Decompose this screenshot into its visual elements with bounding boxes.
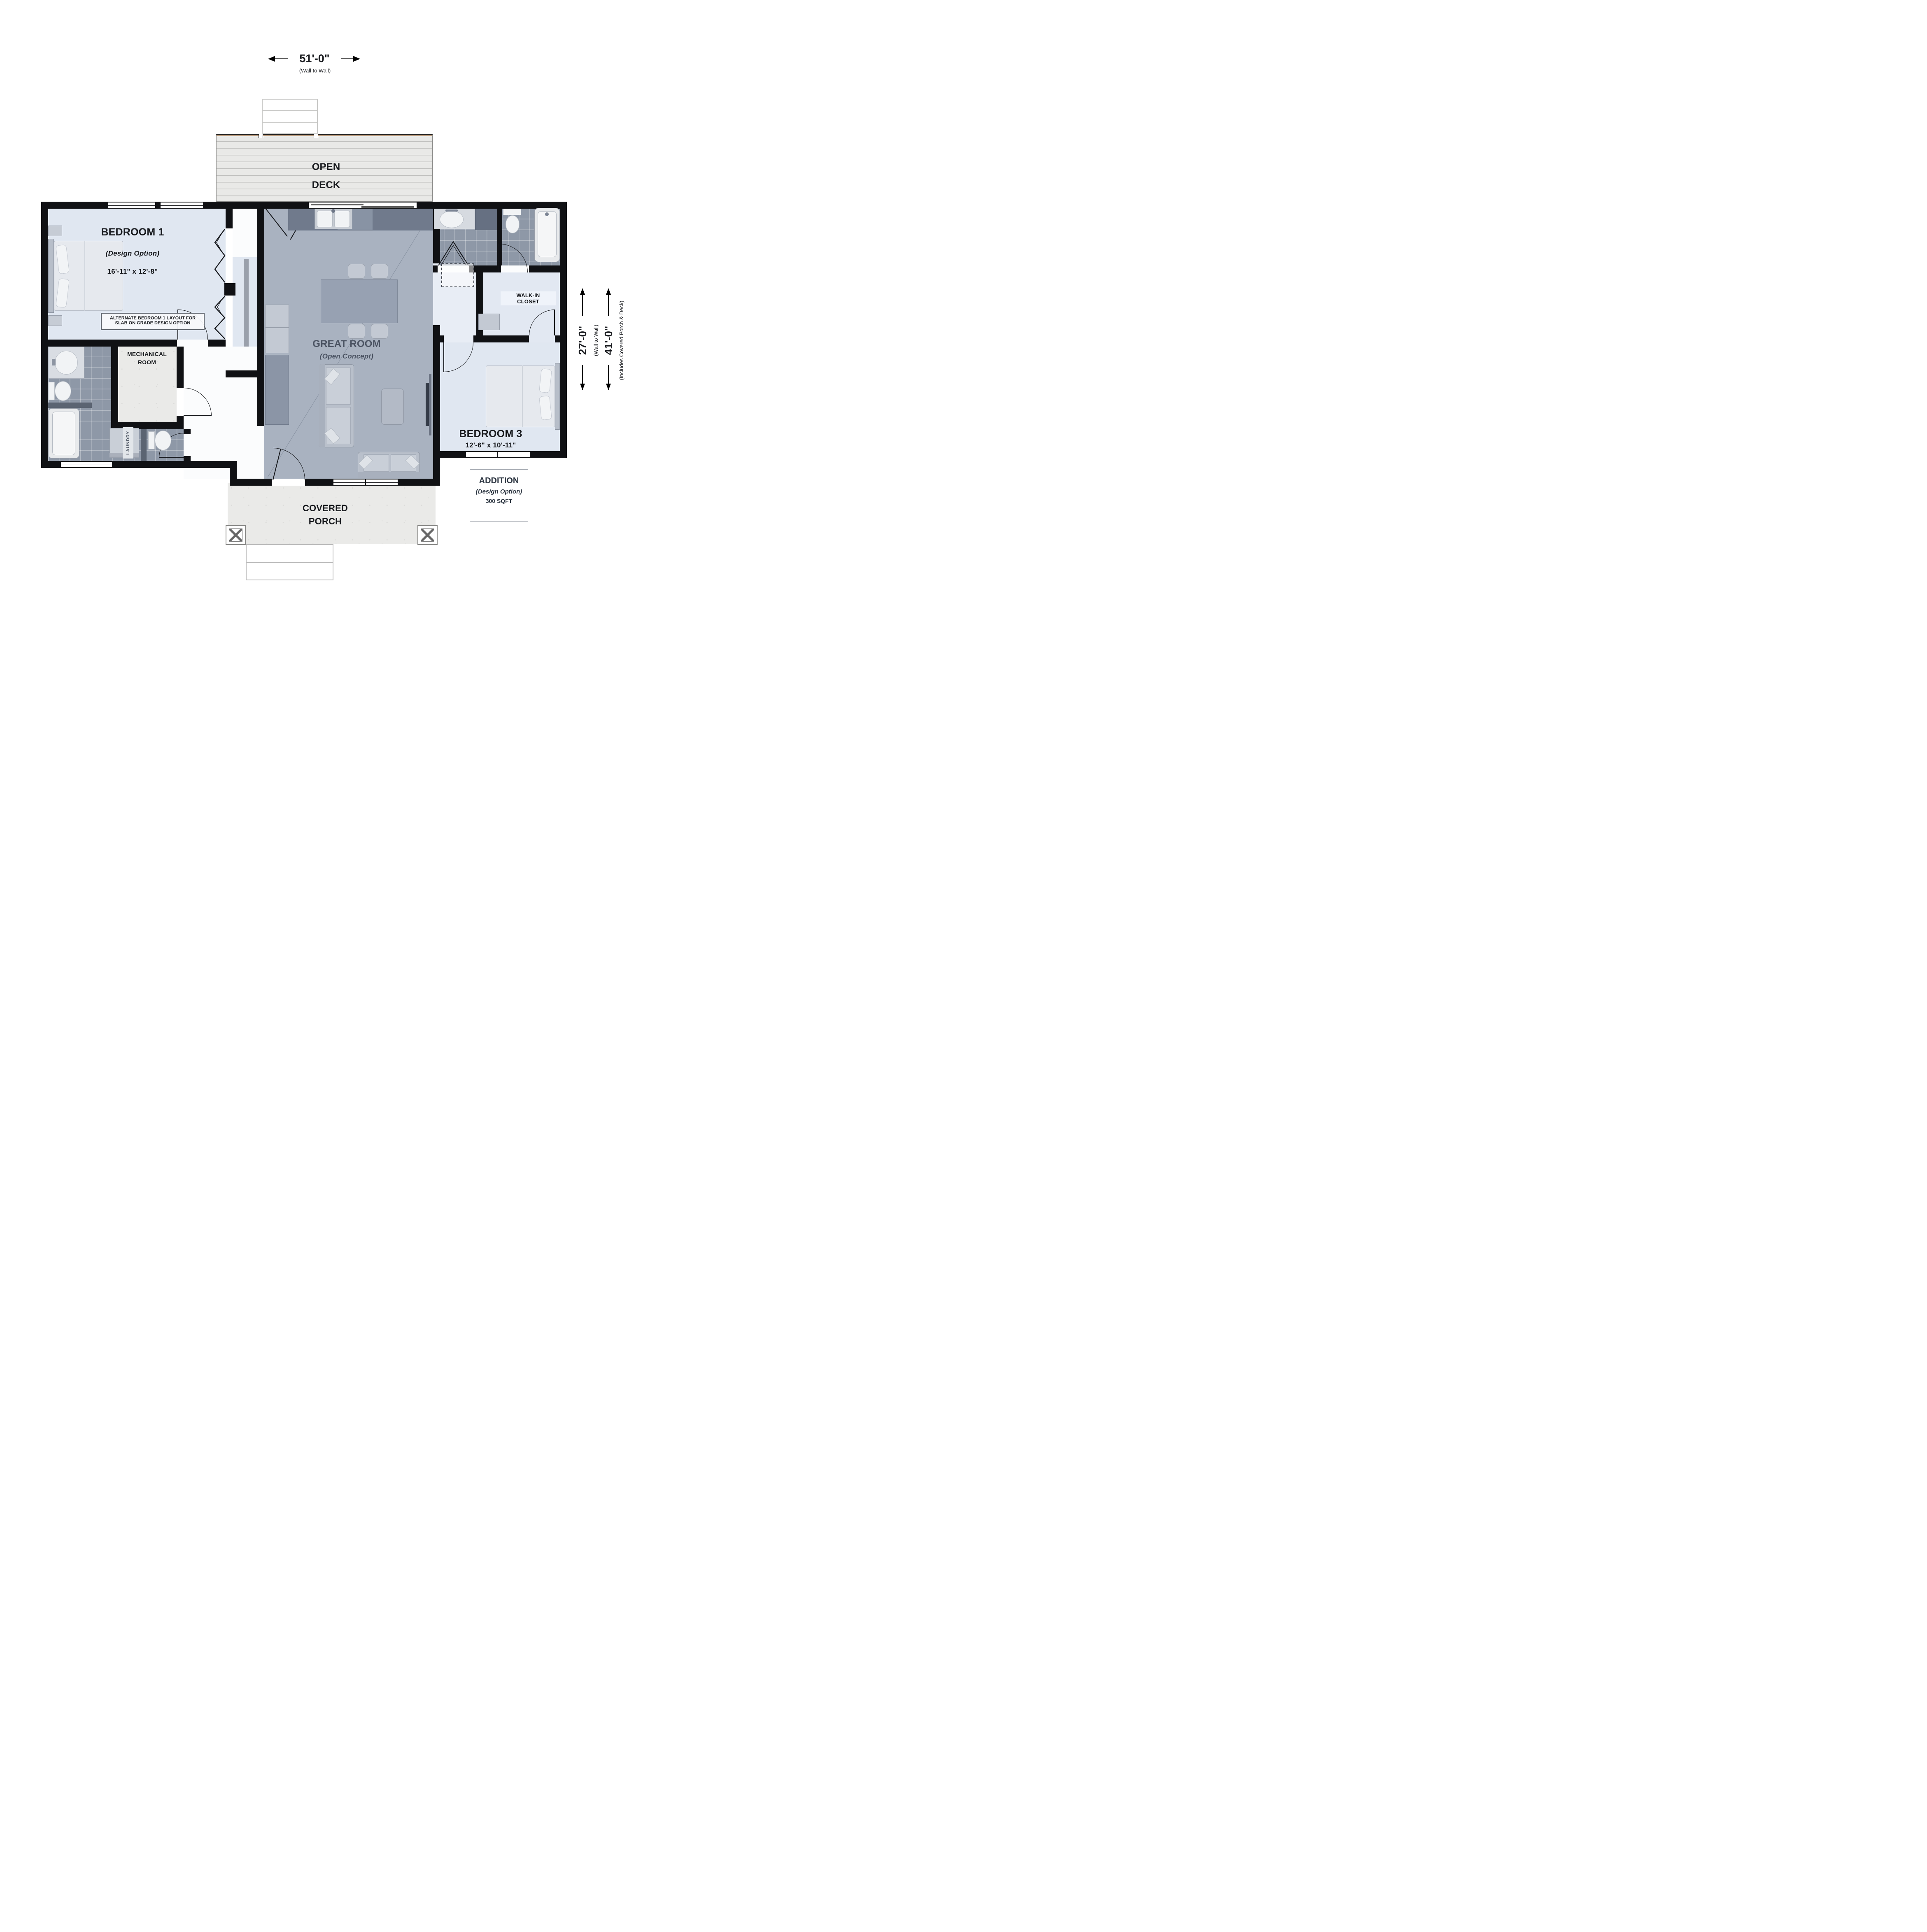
wall xyxy=(184,456,191,461)
fridge xyxy=(265,305,289,353)
nightstand xyxy=(48,315,62,326)
addition-size: 300 SQFT xyxy=(470,498,528,504)
bedroom3-size: 12'-6" x 10'-11" xyxy=(445,441,536,449)
coffee-table xyxy=(381,389,404,425)
deck-post xyxy=(259,134,263,138)
wall xyxy=(555,335,560,342)
wall xyxy=(476,272,483,342)
arrow-left-icon xyxy=(268,56,275,62)
right-dimension-value-1: 27'-0" xyxy=(576,316,590,365)
chair xyxy=(348,264,365,279)
wall xyxy=(433,325,440,479)
toilet-bowl xyxy=(506,215,520,233)
door-gap xyxy=(529,335,555,342)
slider-panel xyxy=(361,206,414,208)
open-deck-label-1: OPEN xyxy=(285,161,367,173)
walk-in-label-box: WALK-IN CLOSET xyxy=(501,291,556,305)
sofa-back xyxy=(319,364,325,447)
nightstand xyxy=(48,226,62,236)
window xyxy=(161,202,203,209)
tub-faucet-icon xyxy=(545,212,549,216)
deck-post xyxy=(314,134,318,138)
right-dimension-value-2: 41'-0" xyxy=(601,316,615,365)
wall xyxy=(177,416,184,429)
sink xyxy=(55,351,78,375)
bathtub-inner xyxy=(52,412,75,455)
shelf xyxy=(48,403,92,408)
arrow-up-icon xyxy=(606,288,611,295)
bifold-door-icon xyxy=(214,228,226,283)
walk-in-label-2: CLOSET xyxy=(501,298,556,305)
wall xyxy=(226,370,264,377)
wall xyxy=(41,202,48,468)
porch-column xyxy=(417,525,438,545)
door-leaf xyxy=(443,342,444,372)
toilet-tank xyxy=(148,431,155,449)
wall xyxy=(433,265,438,272)
door-leaf xyxy=(554,310,555,335)
bedroom3-label: BEDROOM 3 xyxy=(445,428,536,440)
wall xyxy=(208,340,226,347)
mechanical-label-2: ROOM xyxy=(122,359,172,365)
tv xyxy=(426,383,429,426)
fridge-divider xyxy=(265,327,289,328)
window xyxy=(466,451,530,458)
door-leaf xyxy=(499,244,499,272)
window xyxy=(108,202,155,209)
bed-headboard xyxy=(555,363,560,430)
faucet-icon xyxy=(52,359,56,365)
right-dimension-note-1: (Wall to Wall) xyxy=(592,314,600,367)
wall xyxy=(257,209,264,426)
tv-console xyxy=(429,374,431,435)
bed-fold-line xyxy=(522,365,523,427)
toilet-bowl xyxy=(155,431,171,450)
wall xyxy=(529,265,560,272)
faucet-icon xyxy=(445,209,458,212)
top-dimension-value: 51'-0" xyxy=(288,51,341,66)
door-gap xyxy=(177,340,208,347)
wall xyxy=(41,340,177,347)
column-x-icon xyxy=(421,528,434,542)
alternate-layout-note: ALTERNATE BEDROOM 1 LAYOUT FOR SLAB ON G… xyxy=(101,313,205,330)
addition-note-box: ADDITION (Design Option) 300 SQFT xyxy=(470,469,528,522)
chair xyxy=(371,324,388,339)
chair xyxy=(371,264,388,279)
bedroom1-label: BEDROOM 1 xyxy=(87,226,178,238)
toilet-bowl xyxy=(55,381,71,401)
deck-rail-accent xyxy=(217,135,432,136)
arrow-down-icon xyxy=(580,384,585,390)
sink-basin xyxy=(317,211,333,227)
laundry-label: LAUNDRY xyxy=(123,427,133,459)
sink xyxy=(440,211,464,228)
column-x-icon xyxy=(229,528,242,542)
wall xyxy=(111,347,118,429)
slider-panel xyxy=(311,204,363,205)
bedroom1-option: (Design Option) xyxy=(87,249,178,258)
faucet-icon xyxy=(331,209,335,213)
bed-headboard xyxy=(48,239,54,313)
covered-porch-label-1: COVERED xyxy=(284,503,366,514)
alt-note-line2: SLAB ON GRADE DESIGN OPTION xyxy=(102,321,204,326)
cased-opening xyxy=(433,263,440,325)
wall xyxy=(177,347,184,388)
loveseat-back xyxy=(358,472,420,478)
great-room-label: GREAT ROOM xyxy=(305,338,388,350)
chair xyxy=(348,324,365,339)
bifold-door-icon xyxy=(214,296,226,340)
bathtub-inner xyxy=(538,211,557,257)
cabinet xyxy=(475,209,497,230)
top-dimension-note: (Wall to Wall) xyxy=(286,68,344,74)
right-dimension-note-2: (Includes Covered Porch & Deck) xyxy=(617,299,626,382)
wall xyxy=(224,283,235,296)
great-room-option: (Open Concept) xyxy=(305,352,388,361)
deck-steps xyxy=(262,99,318,135)
addition-title: ADDITION xyxy=(470,476,528,486)
arrow-right-icon xyxy=(353,56,360,62)
dining-table xyxy=(321,279,398,323)
door-leaf xyxy=(159,457,184,458)
bedroom1-size: 16'-11" x 12'-8" xyxy=(87,268,178,276)
porch-steps xyxy=(246,544,333,580)
covered-porch-label-2: PORCH xyxy=(284,516,366,527)
deck-sliding-door xyxy=(309,202,417,209)
wall xyxy=(226,209,233,228)
dresser xyxy=(478,314,500,330)
window xyxy=(333,479,398,486)
window xyxy=(61,461,112,468)
bifold-door-icon xyxy=(438,241,469,265)
door-gap xyxy=(444,335,473,342)
floor-plan: 51'-0" (Wall to Wall) OPEN DECK xyxy=(0,0,642,644)
arrow-down-icon xyxy=(606,384,611,390)
arrow-up-icon xyxy=(580,288,585,295)
door-leaf xyxy=(184,415,212,416)
wall xyxy=(560,202,567,458)
toilet-tank xyxy=(48,382,55,400)
mechanical-label-1: MECHANICAL xyxy=(122,351,172,357)
tall-cabinet xyxy=(265,355,289,425)
open-deck-label-2: DECK xyxy=(285,179,367,191)
porch-column xyxy=(226,525,246,545)
partition xyxy=(141,429,147,461)
room-mechanical xyxy=(118,347,177,422)
toilet-tank xyxy=(503,209,521,215)
walk-in-label-1: WALK-IN xyxy=(501,292,556,298)
wall xyxy=(184,429,191,434)
addition-option: (Design Option) xyxy=(470,488,528,495)
alt-note-line1: ALTERNATE BEDROOM 1 LAYOUT FOR xyxy=(102,316,204,321)
dashed-opening xyxy=(441,263,474,287)
sink-basin xyxy=(334,211,350,227)
kitchen-cabinet xyxy=(373,209,433,230)
bed-fold-line xyxy=(84,241,85,311)
